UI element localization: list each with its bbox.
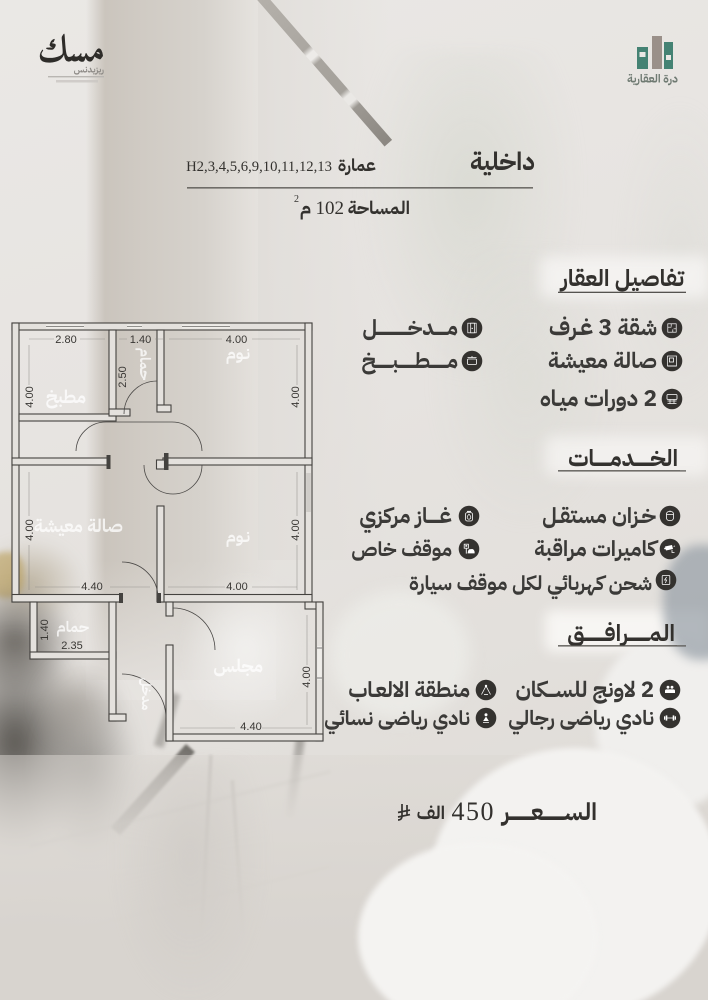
svg-text:4.40: 4.40: [81, 581, 102, 593]
svg-text:1.40: 1.40: [130, 334, 151, 346]
svg-text:2.50: 2.50: [117, 366, 129, 387]
svg-text:4.00: 4.00: [226, 581, 247, 593]
svg-text:2.80: 2.80: [55, 334, 76, 346]
svg-text:4.00: 4.00: [290, 386, 302, 407]
svg-text:2: 2: [294, 194, 299, 205]
svg-text:2.35: 2.35: [61, 640, 82, 652]
svg-text:4.00: 4.00: [290, 519, 302, 540]
svg-text:4.00: 4.00: [24, 519, 36, 540]
svg-text:4.00: 4.00: [24, 386, 36, 407]
svg-text:4.00: 4.00: [226, 334, 247, 346]
svg-text:450: 450: [452, 797, 496, 826]
svg-text:4.40: 4.40: [240, 721, 261, 733]
svg-text:4.00: 4.00: [301, 666, 313, 687]
svg-text:102: 102: [316, 198, 345, 219]
svg-text:H2,3,4,5,6,9,10,11,12,13: H2,3,4,5,6,9,10,11,12,13: [186, 159, 332, 175]
svg-text:1.40: 1.40: [39, 619, 51, 640]
